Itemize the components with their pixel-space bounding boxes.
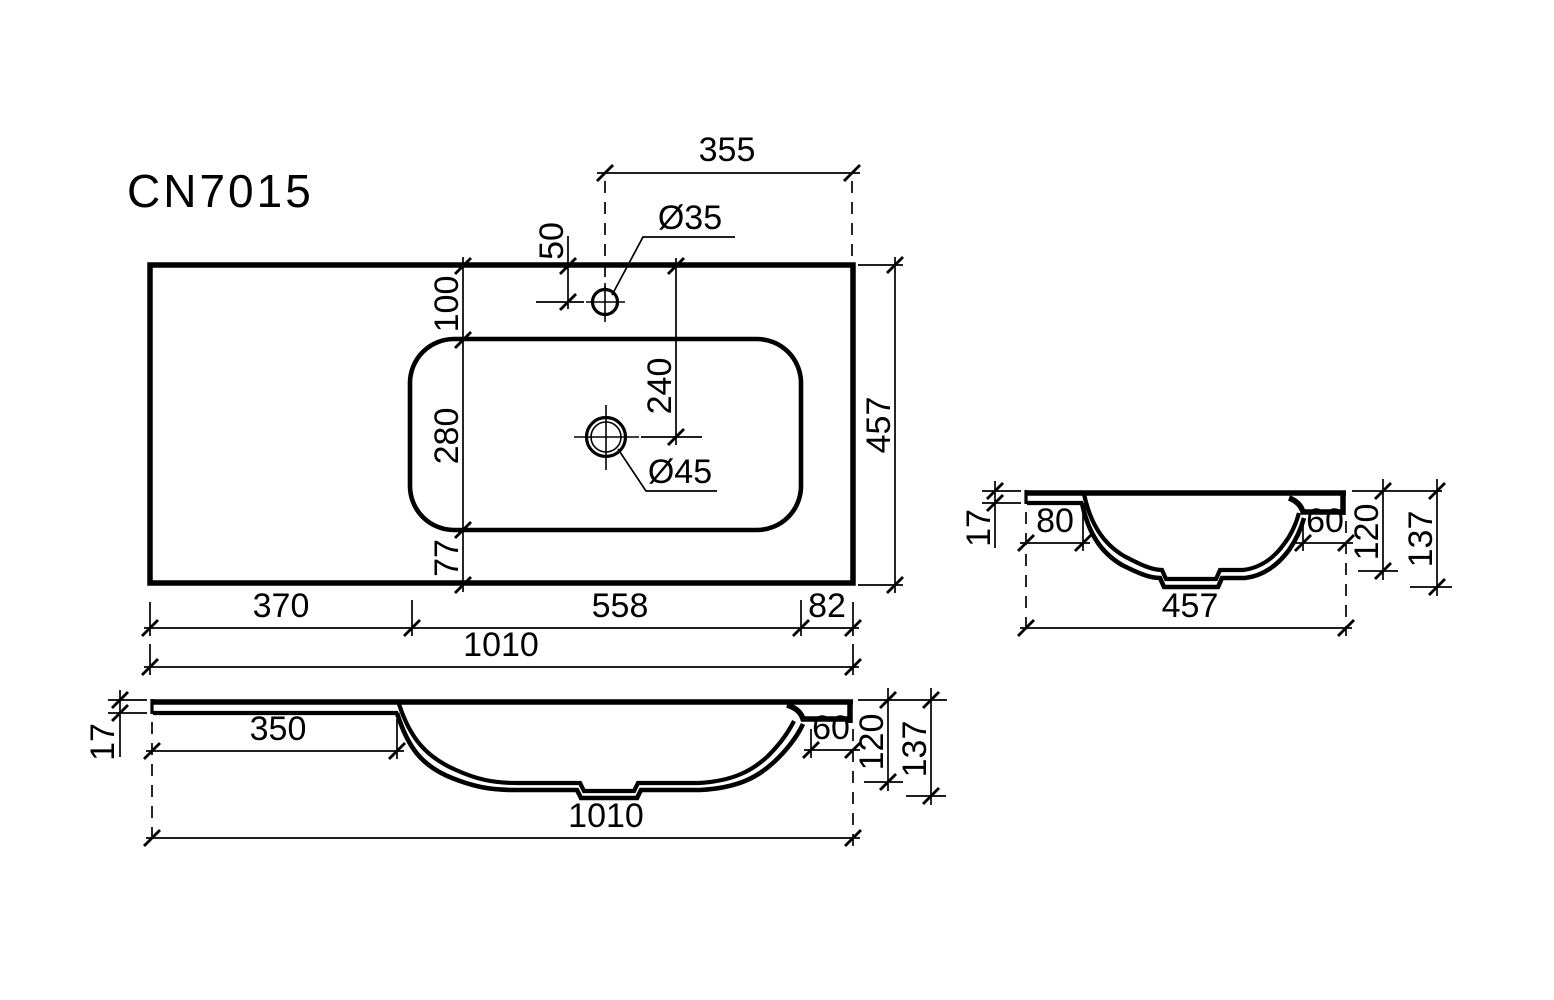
dim-total-width: 457 <box>1018 587 1354 636</box>
bowl-outer-surface <box>397 713 803 798</box>
drain-diameter-callout: Ø45 <box>618 449 717 491</box>
technical-drawing-page: CN7015 355 50 <box>0 0 1554 1000</box>
dim-left-deck: 350 <box>144 710 405 846</box>
dim-label: 350 <box>250 710 307 748</box>
countertop-outline <box>150 265 853 583</box>
model-number-label: CN7015 <box>127 165 314 217</box>
side-section-view: 17 80 60 120 <box>960 479 1452 636</box>
dim-back-ledge: 80 <box>1018 502 1091 636</box>
dim-horizontal-breakdown: 370 558 82 1010 <box>142 587 861 675</box>
dim-label: 17 <box>960 509 998 547</box>
dim-label: 60 <box>1306 502 1344 540</box>
dim-label: 355 <box>699 131 756 169</box>
dim-label: 60 <box>812 709 850 747</box>
dim-label: 17 <box>84 723 122 761</box>
dim-label: 370 <box>253 587 310 625</box>
front-section-view: 17 350 60 120 <box>84 688 947 846</box>
dim-label: 120 <box>1348 504 1386 561</box>
dim-label: 558 <box>592 587 649 625</box>
dim-label: 50 <box>533 222 571 260</box>
dim-label: 1010 <box>463 626 539 664</box>
dim-basin-vertical-offsets: 100 280 77 <box>428 257 471 593</box>
dim-label: 1010 <box>568 797 644 835</box>
drain-hole <box>574 405 639 470</box>
dim-label: 457 <box>860 397 898 454</box>
dim-label: 120 <box>853 714 891 771</box>
dim-drain-from-top: 240 <box>641 258 702 445</box>
faucet-diameter-callout: Ø35 <box>612 199 735 295</box>
technical-drawing-canvas: CN7015 355 50 <box>0 0 1554 1000</box>
dim-label: 100 <box>428 276 466 333</box>
dim-label: 280 <box>428 408 466 465</box>
dim-label: 240 <box>641 358 679 415</box>
dim-label: 77 <box>428 539 466 577</box>
dim-front-ledge: 60 <box>1295 502 1354 636</box>
bowl-inner-surface <box>1084 494 1299 579</box>
bowl-outer-surface <box>1082 503 1304 587</box>
dim-rim-thickness: 17 <box>960 481 1021 548</box>
dim-total-height: 137 <box>896 688 946 805</box>
dim-label: 137 <box>896 721 934 778</box>
dim-rim-thickness: 17 <box>84 690 147 761</box>
dim-total-length: 1010 <box>144 797 861 846</box>
dim-label: Ø45 <box>648 453 712 491</box>
dim-label: Ø35 <box>658 199 722 237</box>
dim-label: 80 <box>1036 502 1074 540</box>
dim-total-depth: 457 <box>858 257 903 593</box>
dim-total-height: 137 <box>1402 479 1452 596</box>
dim-label: 137 <box>1402 511 1440 568</box>
dim-label: 457 <box>1162 587 1219 625</box>
dim-label: 82 <box>808 587 846 625</box>
